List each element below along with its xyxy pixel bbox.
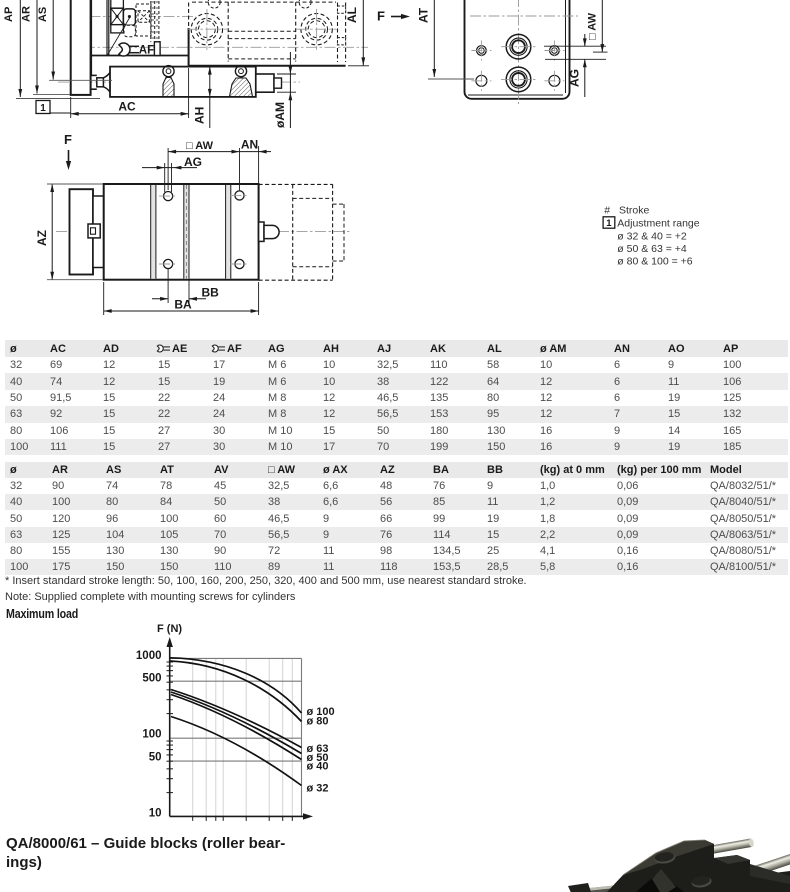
svg-text:AH: AH	[193, 107, 207, 124]
svg-text:#: #	[604, 205, 610, 217]
svg-text:ø 32 & 40 = +2: ø 32 & 40 = +2	[617, 231, 687, 243]
svg-text:50: 50	[149, 751, 162, 763]
svg-text:1: 1	[606, 218, 612, 229]
svg-text:100: 100	[142, 729, 161, 741]
svg-text:F: F	[377, 9, 385, 24]
svg-text:10: 10	[149, 807, 162, 819]
svg-text:ø 50 & 63 = +4: ø 50 & 63 = +4	[617, 243, 687, 255]
svg-text:□ AW: □ AW	[587, 12, 599, 40]
svg-text:1000: 1000	[136, 650, 162, 662]
svg-text:ø 40: ø 40	[307, 760, 329, 772]
svg-text:AG: AG	[568, 69, 582, 87]
svg-text:ø 80 & 100 = +6: ø 80 & 100 = +6	[617, 255, 692, 267]
svg-text:Stroke: Stroke	[619, 205, 650, 217]
svg-text:1: 1	[40, 103, 46, 114]
svg-text:AZ: AZ	[35, 230, 49, 246]
svg-text:AR: AR	[21, 6, 33, 22]
svg-text:F (N): F (N)	[157, 623, 182, 635]
svg-text:AC: AC	[118, 100, 136, 114]
svg-text:Adjustment range: Adjustment range	[617, 217, 699, 229]
svg-text:AF: AF	[139, 45, 154, 57]
svg-text:AG: AG	[184, 155, 202, 169]
svg-text:AP: AP	[3, 7, 15, 22]
svg-text:□ AW: □ AW	[186, 140, 214, 152]
svg-text:øAM: øAM	[273, 102, 287, 128]
svg-text:BB: BB	[202, 286, 220, 300]
svg-text:BA: BA	[174, 298, 192, 312]
svg-text:AT: AT	[417, 7, 431, 23]
svg-text:ø 80: ø 80	[307, 715, 329, 727]
svg-text:AS: AS	[37, 7, 49, 22]
svg-text:ø 32: ø 32	[307, 782, 329, 794]
svg-text:F: F	[64, 132, 72, 147]
svg-text:AL: AL	[345, 7, 359, 23]
svg-text:500: 500	[142, 673, 161, 685]
svg-text:AN: AN	[241, 138, 258, 152]
